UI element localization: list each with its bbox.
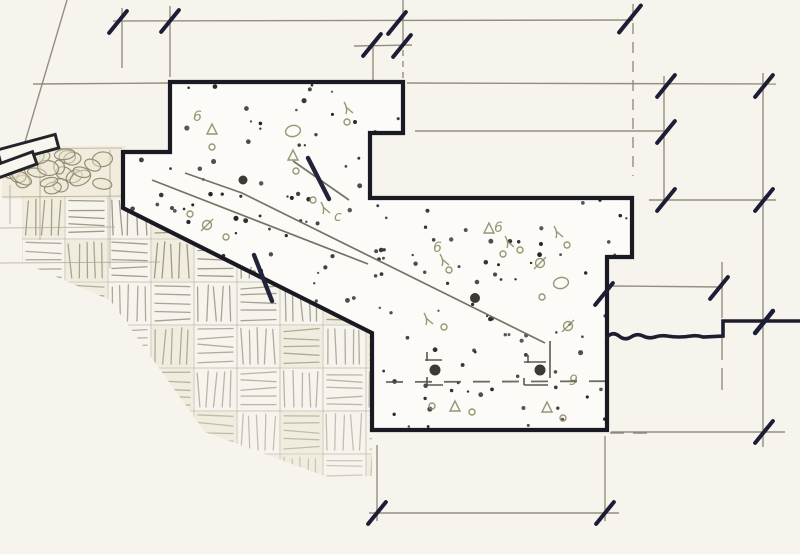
svg-text:6: 6 [494, 220, 503, 236]
svg-text:c: c [334, 209, 342, 225]
drawing-viewport: 6cb669 [0, 0, 800, 554]
footing-detail-sketch: 6cb669 [0, 0, 800, 554]
svg-text:6: 6 [193, 109, 202, 125]
svg-text:6: 6 [433, 240, 442, 256]
